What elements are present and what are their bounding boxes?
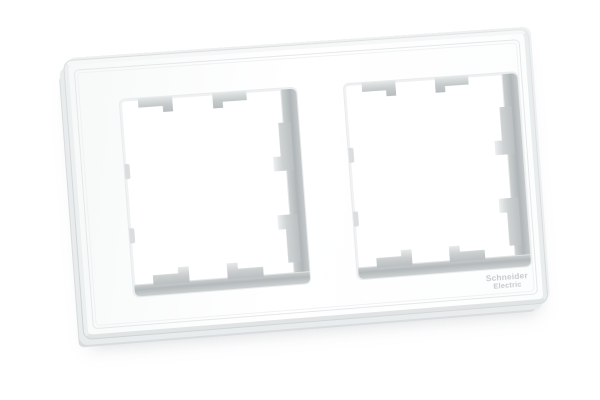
- product-photo: Schneider Electric: [0, 0, 600, 400]
- mounting-clip-bottom-icon: [152, 266, 189, 285]
- mounting-clip-bottom-icon: [376, 249, 413, 268]
- mounting-clip-top-icon: [138, 96, 173, 113]
- left-notch: [129, 228, 135, 243]
- left-notch: [348, 148, 354, 163]
- double-frame: Schneider Electric: [63, 29, 549, 341]
- mounting-clip-side-icon: [271, 122, 294, 171]
- frame-opening-left: [120, 88, 311, 297]
- left-notch: [124, 164, 130, 179]
- mounting-clip-top-icon: [435, 76, 470, 93]
- mounting-clip-side-icon: [492, 106, 515, 155]
- mounting-clip-side-icon: [277, 214, 300, 263]
- mounting-clip-bottom-icon: [449, 244, 485, 263]
- frame-opening-right: [344, 72, 531, 279]
- frame-front-face: Schneider Electric: [64, 30, 548, 339]
- mounting-clip-top-icon: [362, 81, 397, 98]
- left-notch: [353, 211, 359, 226]
- mounting-clip-top-icon: [212, 91, 247, 108]
- mounting-clip-side-icon: [499, 197, 522, 246]
- mounting-clip-bottom-icon: [227, 261, 264, 280]
